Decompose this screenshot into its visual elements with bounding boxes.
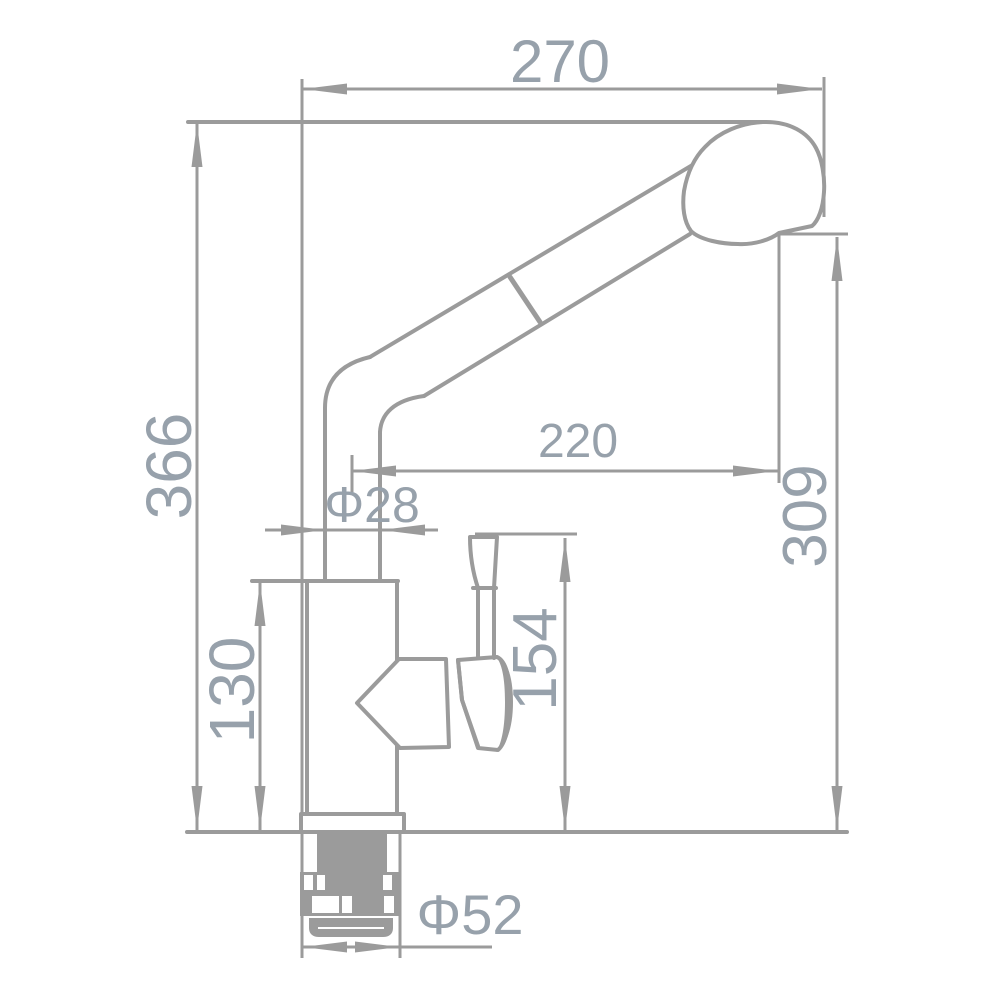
- nut-notch: [304, 875, 313, 890]
- dim-label-overall-height: 366: [137, 413, 201, 520]
- bend-inner-curve: [380, 396, 424, 432]
- dim-label-handle-height: 154: [505, 607, 567, 710]
- faucet-outline: [188, 122, 824, 832]
- under-counter-mounting: [300, 834, 401, 937]
- nut-slot: [384, 896, 394, 913]
- base-flange: [301, 814, 404, 832]
- nut-slot: [312, 896, 339, 913]
- nut-notch: [317, 875, 325, 890]
- dim-label-pipe-diameter: Φ28: [324, 480, 420, 530]
- spout-lower-edge: [424, 234, 690, 396]
- dim-label-spout-reach: 220: [538, 418, 618, 466]
- threaded-shank: [317, 834, 387, 873]
- dim-label-body-height: 130: [200, 637, 264, 744]
- bend-outer-curve: [325, 357, 370, 408]
- spout-divider-ring: [510, 277, 540, 322]
- dim-label-outlet-height: 309: [775, 464, 837, 567]
- handle-lever-paddle: [470, 537, 497, 588]
- nut-notch: [383, 875, 392, 890]
- dim-label-base-diameter: Φ52: [417, 887, 524, 943]
- spray-head: [683, 122, 824, 244]
- handle-lever-stem: [478, 588, 494, 658]
- dim-label-top-width: 270: [510, 32, 610, 92]
- nut-slot: [342, 896, 352, 913]
- technical-drawing-canvas: 270 366 220 Φ28 309 154 130 Φ52: [0, 0, 1000, 1000]
